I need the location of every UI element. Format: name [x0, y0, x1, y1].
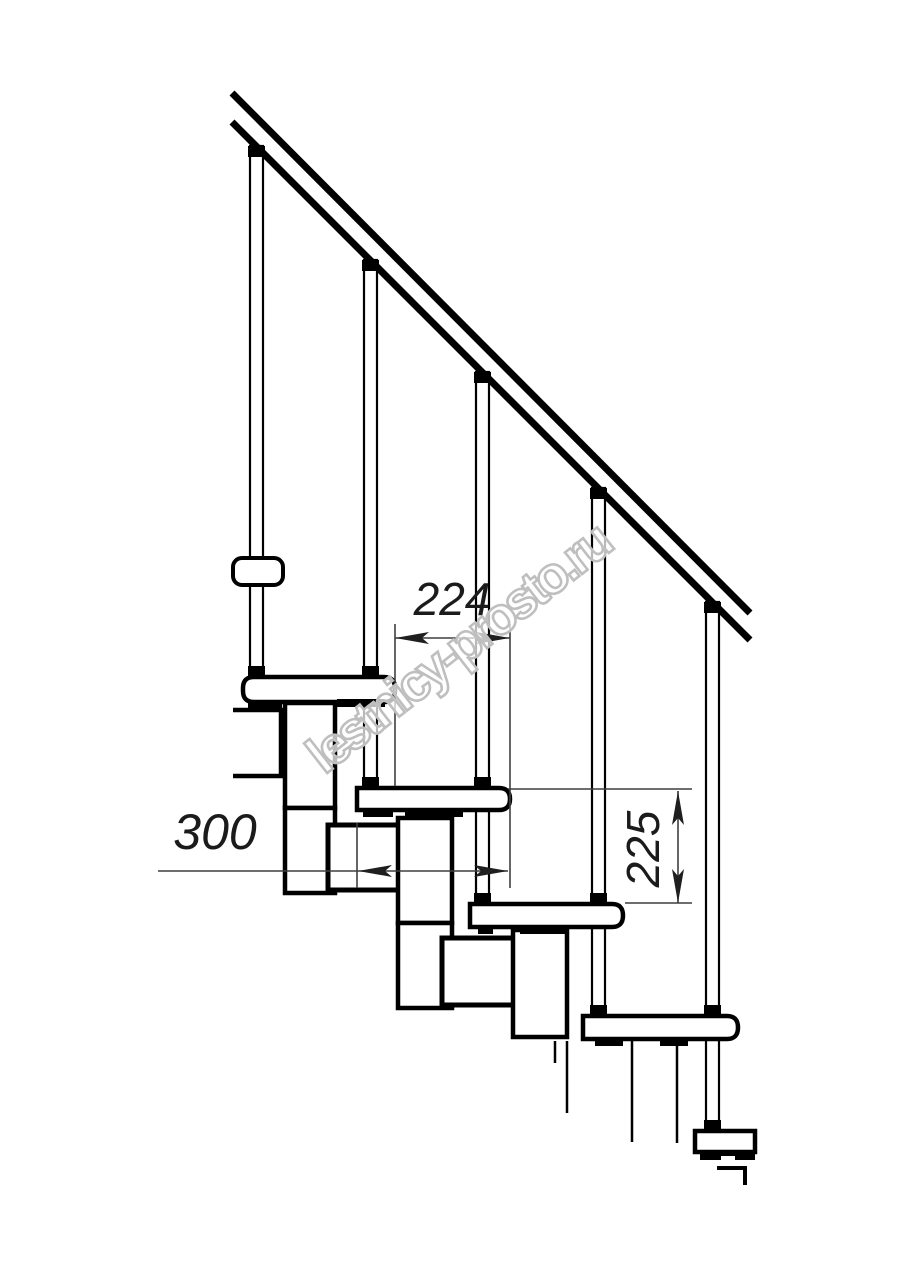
collar — [362, 260, 379, 271]
module-cup-3 — [513, 930, 567, 1037]
tread-5 — [695, 1131, 755, 1152]
fastener-tab — [595, 1038, 623, 1046]
handrail — [232, 93, 750, 640]
handrail-top-line — [232, 93, 750, 613]
collar — [704, 1005, 721, 1016]
collar — [474, 777, 491, 788]
collar — [248, 666, 265, 677]
collar — [362, 777, 379, 788]
fastener-notch — [721, 1156, 735, 1161]
handrail-wall-bracket — [233, 558, 283, 585]
dimension-label-tread-depth: 300 — [173, 804, 257, 860]
fastener-tab — [248, 701, 282, 709]
collar — [590, 1005, 607, 1016]
dimension-label-step-rise: 225 — [617, 810, 669, 888]
watermark-text: lestnicy-prosto.ru — [296, 512, 622, 785]
upper-floor-edge — [233, 710, 281, 776]
module-body-1 — [328, 825, 405, 890]
collar — [704, 1120, 721, 1131]
fastener-tab — [520, 926, 568, 934]
staircase-technical-drawing: 224 300 225 lestnicy-prosto.ru — [0, 0, 914, 1280]
collar — [704, 602, 721, 613]
module-cut-line-5 — [717, 1168, 745, 1185]
collar — [590, 893, 607, 904]
baluster-1 — [250, 146, 263, 677]
fastener-tab — [405, 809, 463, 817]
collar — [248, 146, 265, 157]
baluster-5 — [706, 602, 719, 1131]
tread-2 — [357, 788, 510, 810]
fastener-tab — [660, 1038, 688, 1046]
collar — [474, 372, 491, 383]
collar — [590, 488, 607, 499]
tread-3 — [470, 904, 623, 927]
module-body-2 — [442, 938, 518, 1005]
collar — [474, 893, 491, 904]
fastener-tab — [363, 809, 393, 817]
support-modules — [285, 703, 745, 1185]
fastener-tab — [478, 926, 493, 934]
staircase-drawing-page: 224 300 225 lestnicy-prosto.ru — [0, 0, 914, 1280]
tread-4 — [583, 1016, 738, 1039]
